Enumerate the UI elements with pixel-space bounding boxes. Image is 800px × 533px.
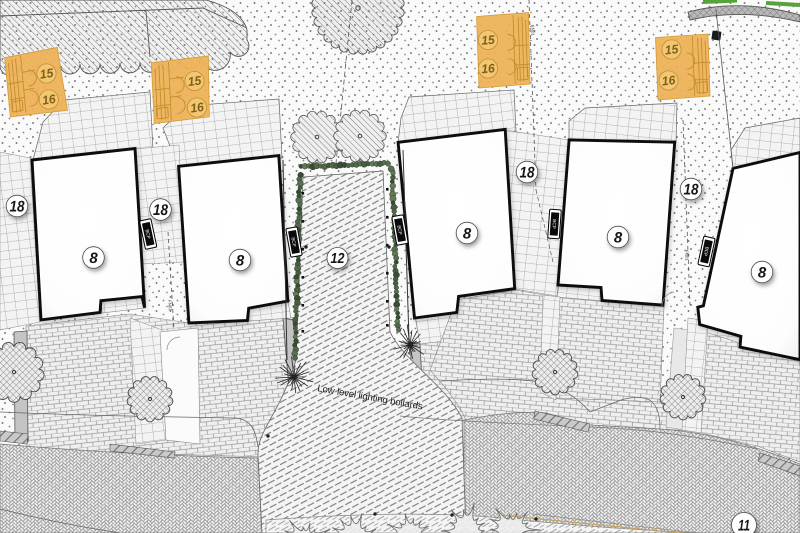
svg-text:FN01: FN01 bbox=[167, 300, 173, 312]
svg-text:8: 8 bbox=[236, 252, 245, 269]
svg-text:8: 8 bbox=[614, 229, 623, 246]
svg-text:11: 11 bbox=[738, 518, 750, 533]
svg-text:8: 8 bbox=[463, 225, 472, 242]
svg-text:8: 8 bbox=[89, 250, 98, 267]
svg-text:FN01: FN01 bbox=[684, 250, 689, 262]
svg-text:12: 12 bbox=[331, 251, 345, 267]
svg-text:16: 16 bbox=[661, 73, 677, 88]
svg-text:18: 18 bbox=[153, 202, 168, 219]
svg-text:BCP: BCP bbox=[551, 219, 557, 229]
svg-text:15: 15 bbox=[481, 33, 496, 48]
svg-text:15: 15 bbox=[664, 42, 680, 57]
svg-text:FN01: FN01 bbox=[530, 25, 535, 37]
svg-text:18: 18 bbox=[684, 182, 699, 199]
svg-text:18: 18 bbox=[10, 199, 25, 216]
svg-text:18: 18 bbox=[520, 165, 535, 182]
svg-text:16: 16 bbox=[481, 61, 496, 76]
svg-text:8: 8 bbox=[758, 264, 767, 281]
